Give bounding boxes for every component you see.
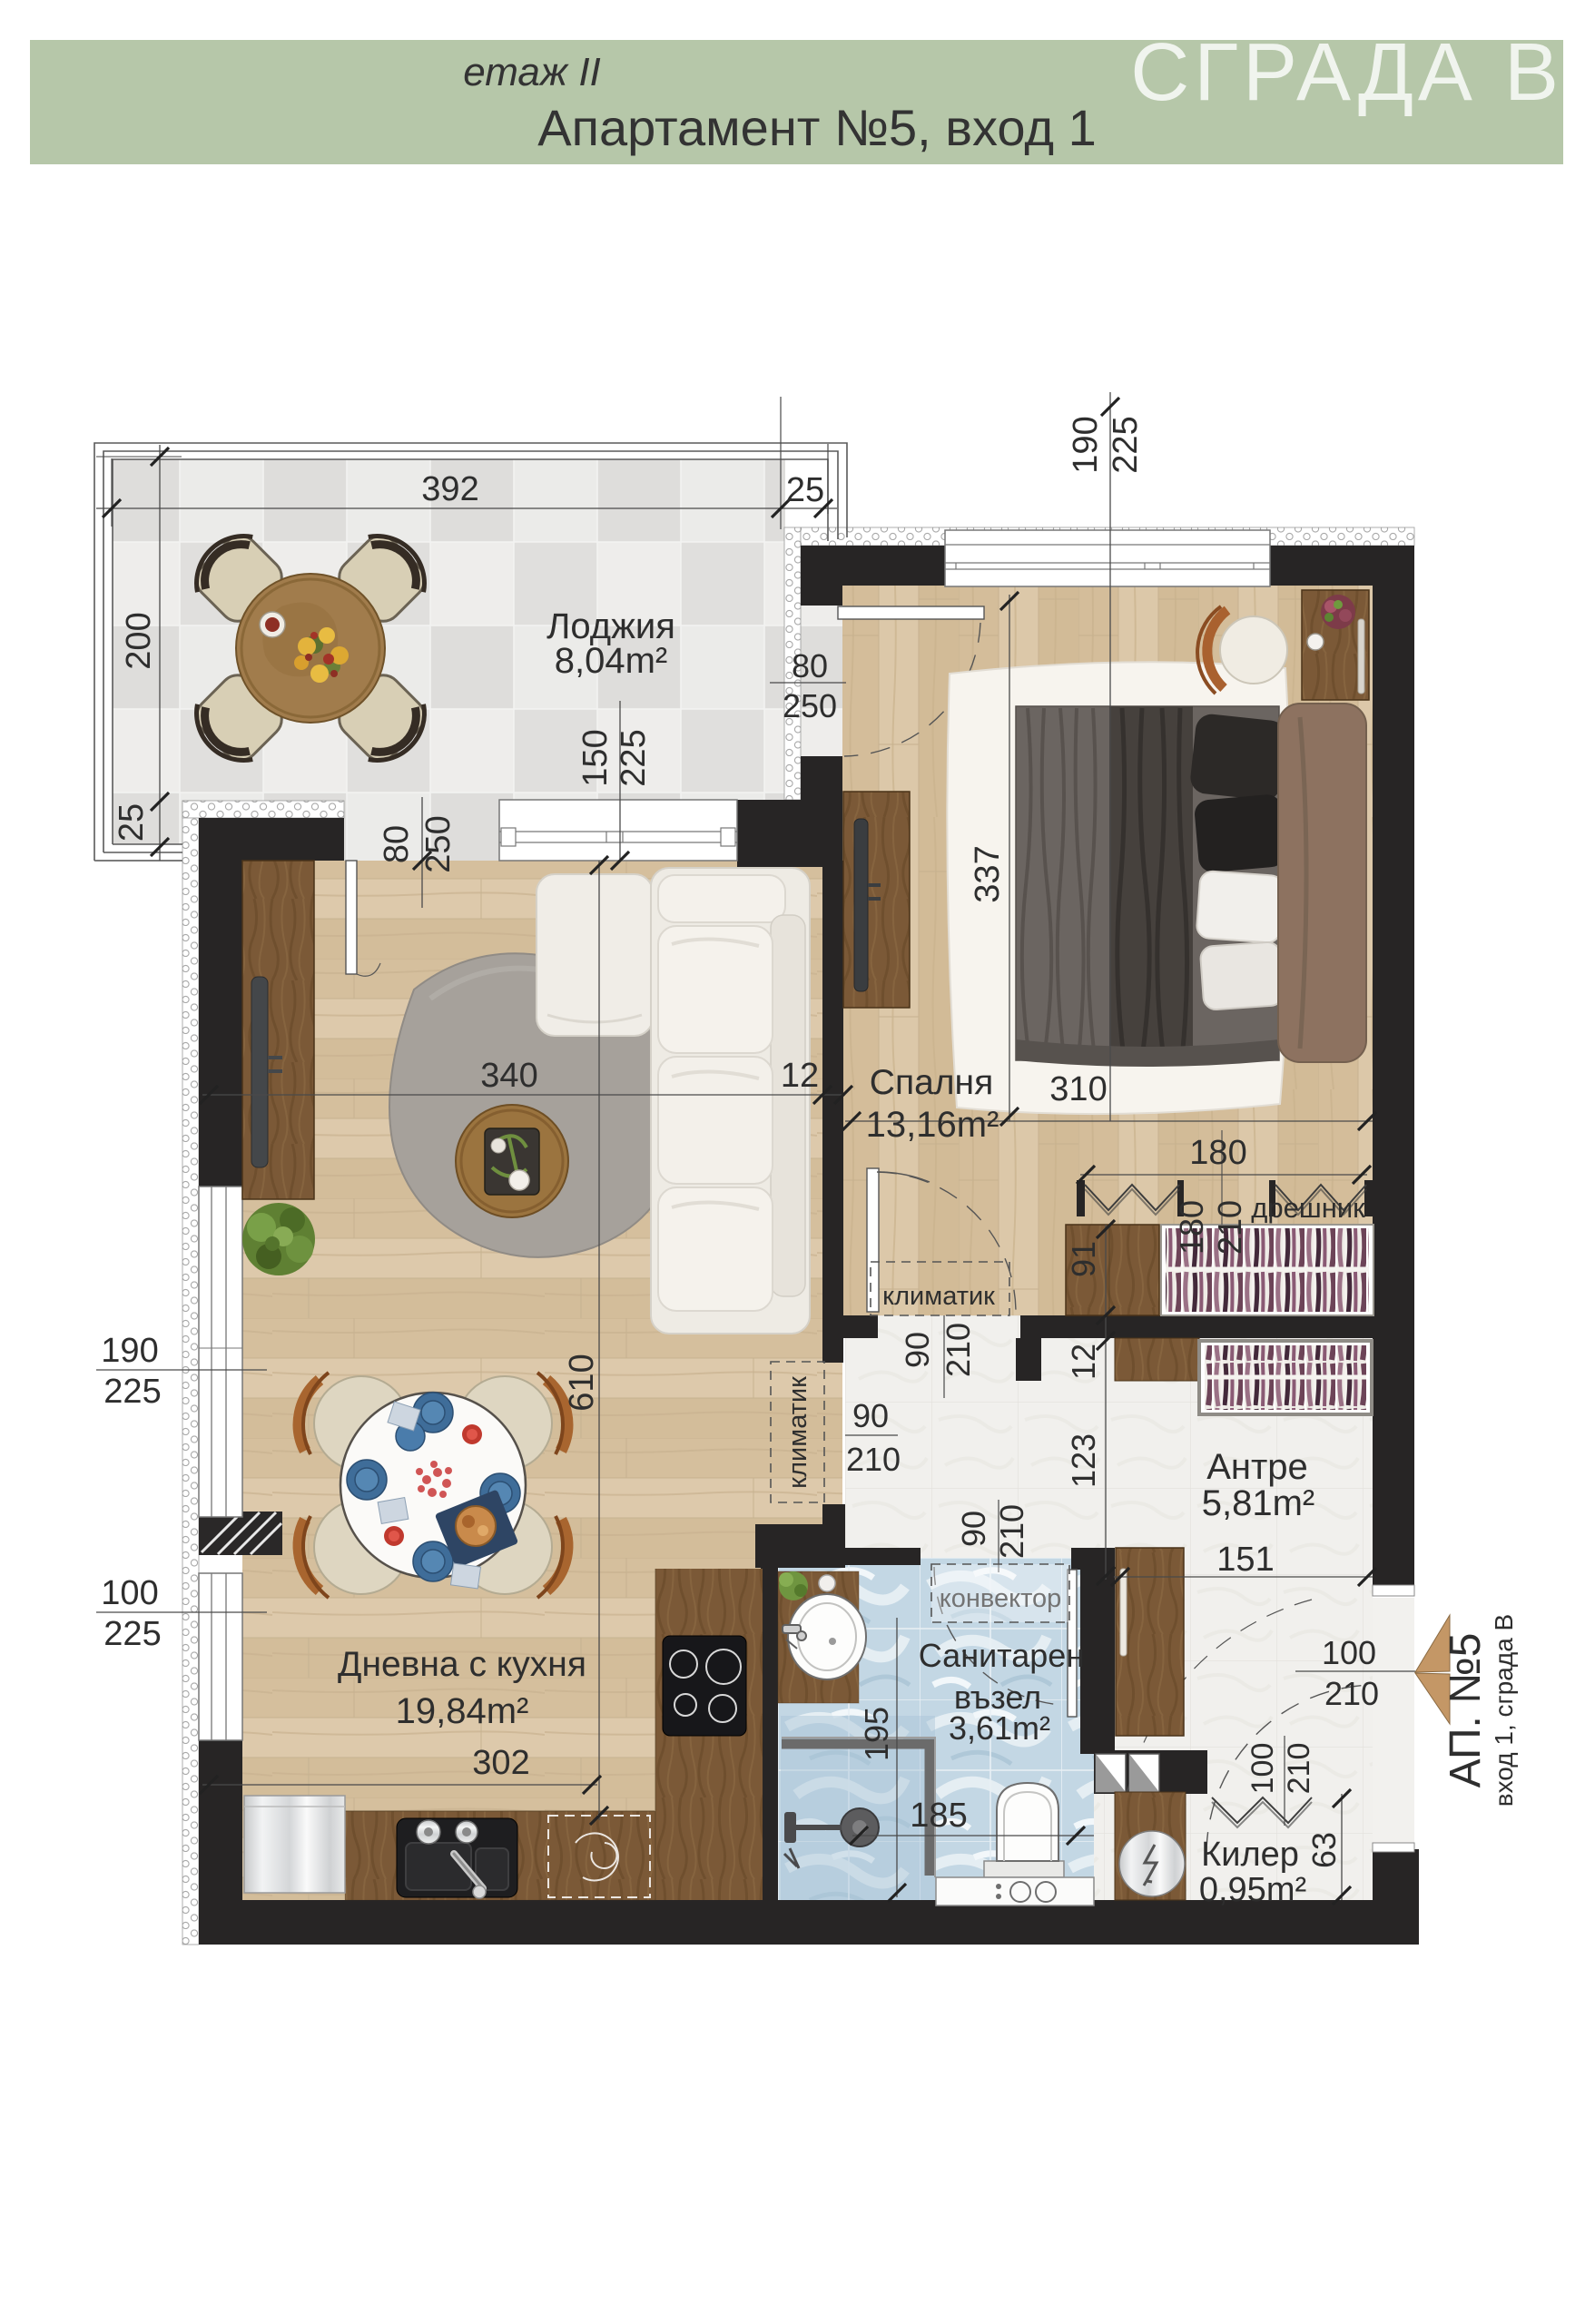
svg-text:СГРАДА В: СГРАДА В (1130, 27, 1563, 118)
svg-text:337: 337 (969, 845, 1007, 902)
svg-text:АП. №5: АП. №5 (1442, 1633, 1490, 1788)
svg-text:123: 123 (1065, 1433, 1102, 1488)
svg-text:25: 25 (786, 471, 824, 509)
svg-text:100: 100 (1322, 1634, 1376, 1671)
svg-text:392: 392 (421, 470, 478, 508)
svg-text:3,61m²: 3,61m² (949, 1709, 1050, 1747)
svg-text:Килер: Килер (1201, 1836, 1299, 1874)
svg-text:0,95m²: 0,95m² (1199, 1871, 1306, 1909)
svg-text:180: 180 (1173, 1200, 1210, 1255)
svg-text:8,04m²: 8,04m² (555, 641, 668, 681)
svg-text:210: 210 (1324, 1675, 1379, 1712)
svg-text:Апартамент №5, вход 1: Апартамент №5, вход 1 (537, 99, 1096, 156)
svg-text:Спалня: Спалня (870, 1063, 993, 1102)
svg-text:90: 90 (852, 1397, 889, 1434)
svg-text:климатик: климатик (783, 1376, 812, 1489)
svg-text:дрешник: дрешник (1251, 1192, 1365, 1224)
svg-text:13,16m²: 13,16m² (866, 1105, 999, 1145)
svg-text:вход 1, сграда В: вход 1, сграда В (1490, 1614, 1518, 1807)
svg-text:91: 91 (1065, 1241, 1102, 1277)
svg-text:80: 80 (792, 647, 828, 684)
svg-text:12: 12 (1065, 1344, 1102, 1380)
svg-text:190: 190 (1067, 416, 1105, 473)
svg-text:340: 340 (480, 1057, 537, 1095)
svg-text:180: 180 (1189, 1134, 1246, 1172)
svg-text:210: 210 (846, 1441, 901, 1478)
svg-text:200: 200 (120, 612, 158, 669)
svg-text:210: 210 (1211, 1200, 1248, 1255)
svg-text:90: 90 (899, 1332, 936, 1368)
svg-text:310: 310 (1049, 1070, 1107, 1108)
svg-text:етаж II: етаж II (463, 50, 601, 94)
svg-text:12: 12 (781, 1057, 819, 1095)
svg-text:80: 80 (378, 825, 416, 863)
svg-text:210: 210 (993, 1504, 1030, 1559)
svg-text:151: 151 (1216, 1541, 1274, 1579)
svg-text:302: 302 (472, 1744, 529, 1782)
svg-text:Дневна с кухня: Дневна с кухня (338, 1645, 586, 1684)
svg-text:210: 210 (1282, 1743, 1316, 1795)
svg-text:195: 195 (858, 1707, 895, 1761)
svg-text:100: 100 (1245, 1743, 1280, 1795)
svg-text:185: 185 (910, 1797, 967, 1835)
svg-text:190: 190 (101, 1332, 158, 1370)
svg-text:225: 225 (1107, 416, 1145, 473)
svg-text:225: 225 (103, 1615, 161, 1653)
svg-text:климатик: климатик (882, 1282, 995, 1311)
svg-text:5,81m²: 5,81m² (1202, 1483, 1315, 1523)
svg-text:210: 210 (940, 1323, 977, 1377)
svg-text:150: 150 (576, 729, 615, 786)
svg-text:610: 610 (563, 1354, 601, 1411)
svg-text:250: 250 (783, 687, 837, 724)
svg-text:225: 225 (615, 729, 653, 786)
svg-text:90: 90 (955, 1511, 992, 1547)
svg-text:225: 225 (103, 1373, 161, 1411)
svg-text:250: 250 (419, 815, 458, 872)
svg-text:Антре: Антре (1206, 1447, 1308, 1487)
svg-text:Санитарен: Санитарен (919, 1637, 1084, 1674)
svg-text:19,84m²: 19,84m² (396, 1691, 529, 1731)
svg-text:25: 25 (113, 803, 151, 842)
svg-text:63: 63 (1305, 1832, 1343, 1868)
svg-text:100: 100 (101, 1574, 158, 1612)
